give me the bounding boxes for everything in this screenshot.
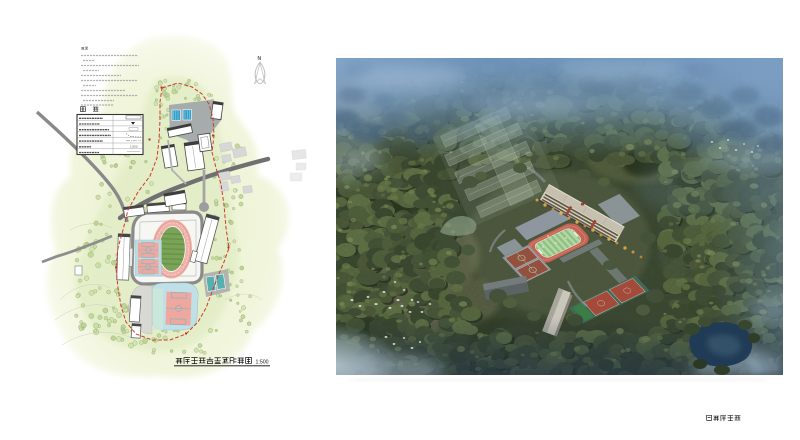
svg-text:1:500: 1:500 [256, 360, 269, 366]
svg-text:N: N [258, 56, 262, 62]
svg-text:1:500: 1:500 [130, 145, 138, 149]
